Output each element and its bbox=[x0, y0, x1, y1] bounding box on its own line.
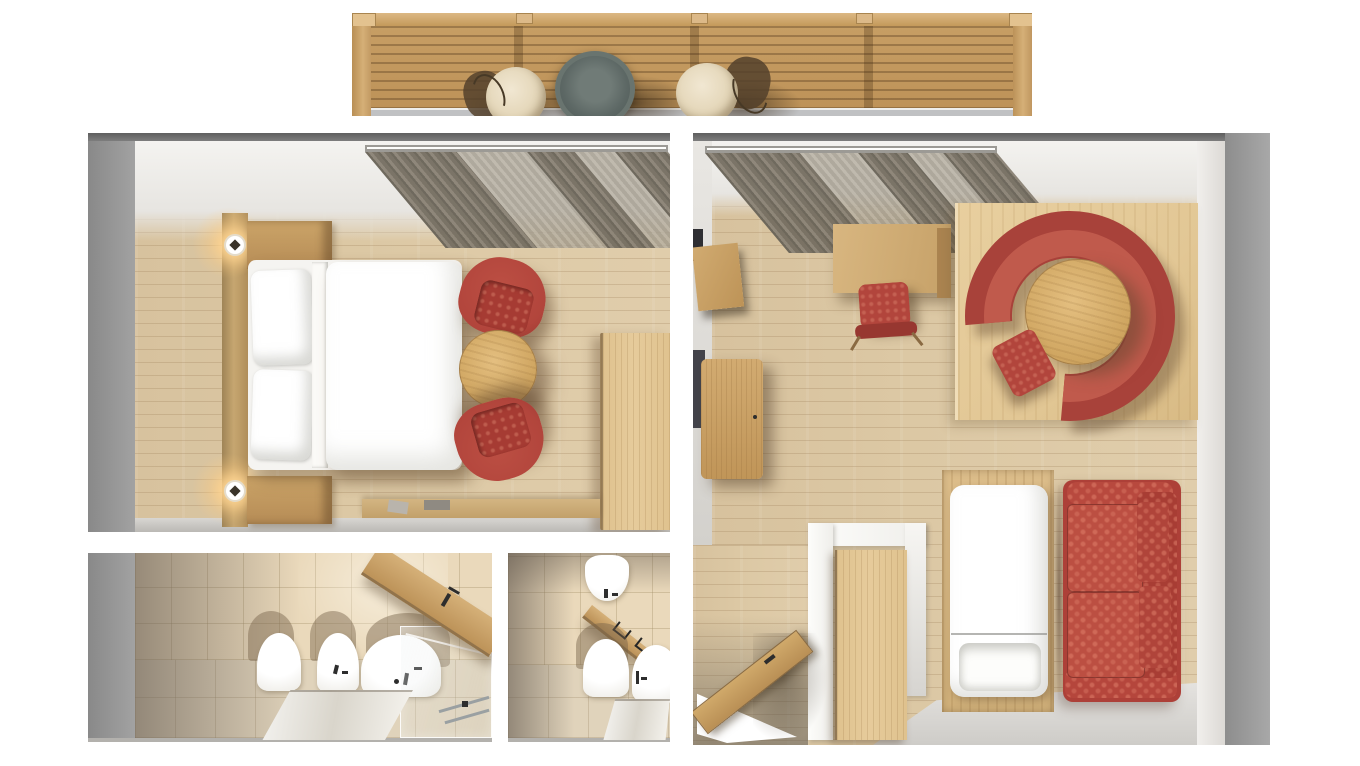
vanity-object bbox=[424, 500, 450, 510]
curtain-rail-highlight bbox=[707, 148, 995, 150]
daybed-pillow bbox=[959, 643, 1041, 691]
pergola-bracket bbox=[516, 13, 533, 24]
pillow-top bbox=[250, 269, 313, 366]
door-handle bbox=[764, 654, 776, 665]
sofa-back-cushion bbox=[1139, 586, 1171, 668]
living-top-wall bbox=[693, 133, 1270, 141]
red-desk-chair bbox=[850, 281, 924, 348]
sideboard bbox=[701, 359, 763, 479]
nightstand-bottom bbox=[247, 476, 332, 524]
wicker-chair-right bbox=[676, 63, 738, 116]
round-wood-table bbox=[459, 330, 537, 408]
bath-control bbox=[394, 679, 399, 684]
wall-lamp-top bbox=[224, 234, 246, 256]
pillow-bottom bbox=[250, 369, 313, 461]
sofa-gap-shadow bbox=[1055, 485, 1063, 700]
living-right-wall bbox=[1225, 133, 1270, 745]
wc-faucet bbox=[636, 671, 639, 684]
wc-bathroom bbox=[508, 553, 670, 742]
curtain-rail-highlight bbox=[367, 147, 666, 149]
bedroom-top-wall bbox=[88, 133, 670, 141]
wc-faucet-spout bbox=[641, 677, 647, 680]
sofa-seat-cushion bbox=[1067, 592, 1145, 678]
sink-faucet bbox=[604, 589, 608, 598]
bidet bbox=[317, 633, 359, 693]
toilet bbox=[257, 633, 301, 691]
wc-toilet bbox=[583, 639, 629, 697]
sofa-seat-cushion bbox=[1067, 504, 1143, 592]
desk-chair-back bbox=[855, 321, 918, 339]
bedroom-left-wall bbox=[88, 141, 135, 532]
wall-lamp-bottom bbox=[224, 480, 246, 502]
sink-control bbox=[612, 593, 618, 596]
bedroom bbox=[88, 133, 670, 532]
wall-cabinet bbox=[693, 243, 744, 311]
double-bed-duvet bbox=[326, 262, 462, 470]
pergola-post-right bbox=[1012, 26, 1032, 116]
living-inner-right-wall bbox=[1197, 141, 1225, 745]
pergola-bracket bbox=[856, 13, 873, 24]
sofa-back-cushion bbox=[1137, 502, 1169, 582]
bedroom-wardrobe bbox=[600, 333, 670, 530]
sideboard-knob bbox=[753, 415, 757, 419]
partition-wall-right bbox=[905, 523, 926, 696]
red-damask-sofa bbox=[1063, 480, 1181, 702]
shower-handle bbox=[462, 701, 468, 707]
main-bathroom bbox=[88, 553, 492, 742]
pergola-bracket bbox=[691, 13, 708, 24]
suite-floorplan-render bbox=[0, 0, 1360, 766]
bathroom-left-wall bbox=[88, 553, 135, 738]
bidet-control bbox=[342, 671, 348, 674]
vanity-object bbox=[387, 500, 408, 515]
daybed-fold-line bbox=[951, 633, 1047, 635]
pergola-rafter bbox=[864, 26, 873, 110]
living-room bbox=[693, 133, 1270, 745]
balcony bbox=[352, 13, 1032, 116]
wardrobe-closet bbox=[835, 550, 907, 740]
pergola-post-left bbox=[352, 26, 372, 116]
